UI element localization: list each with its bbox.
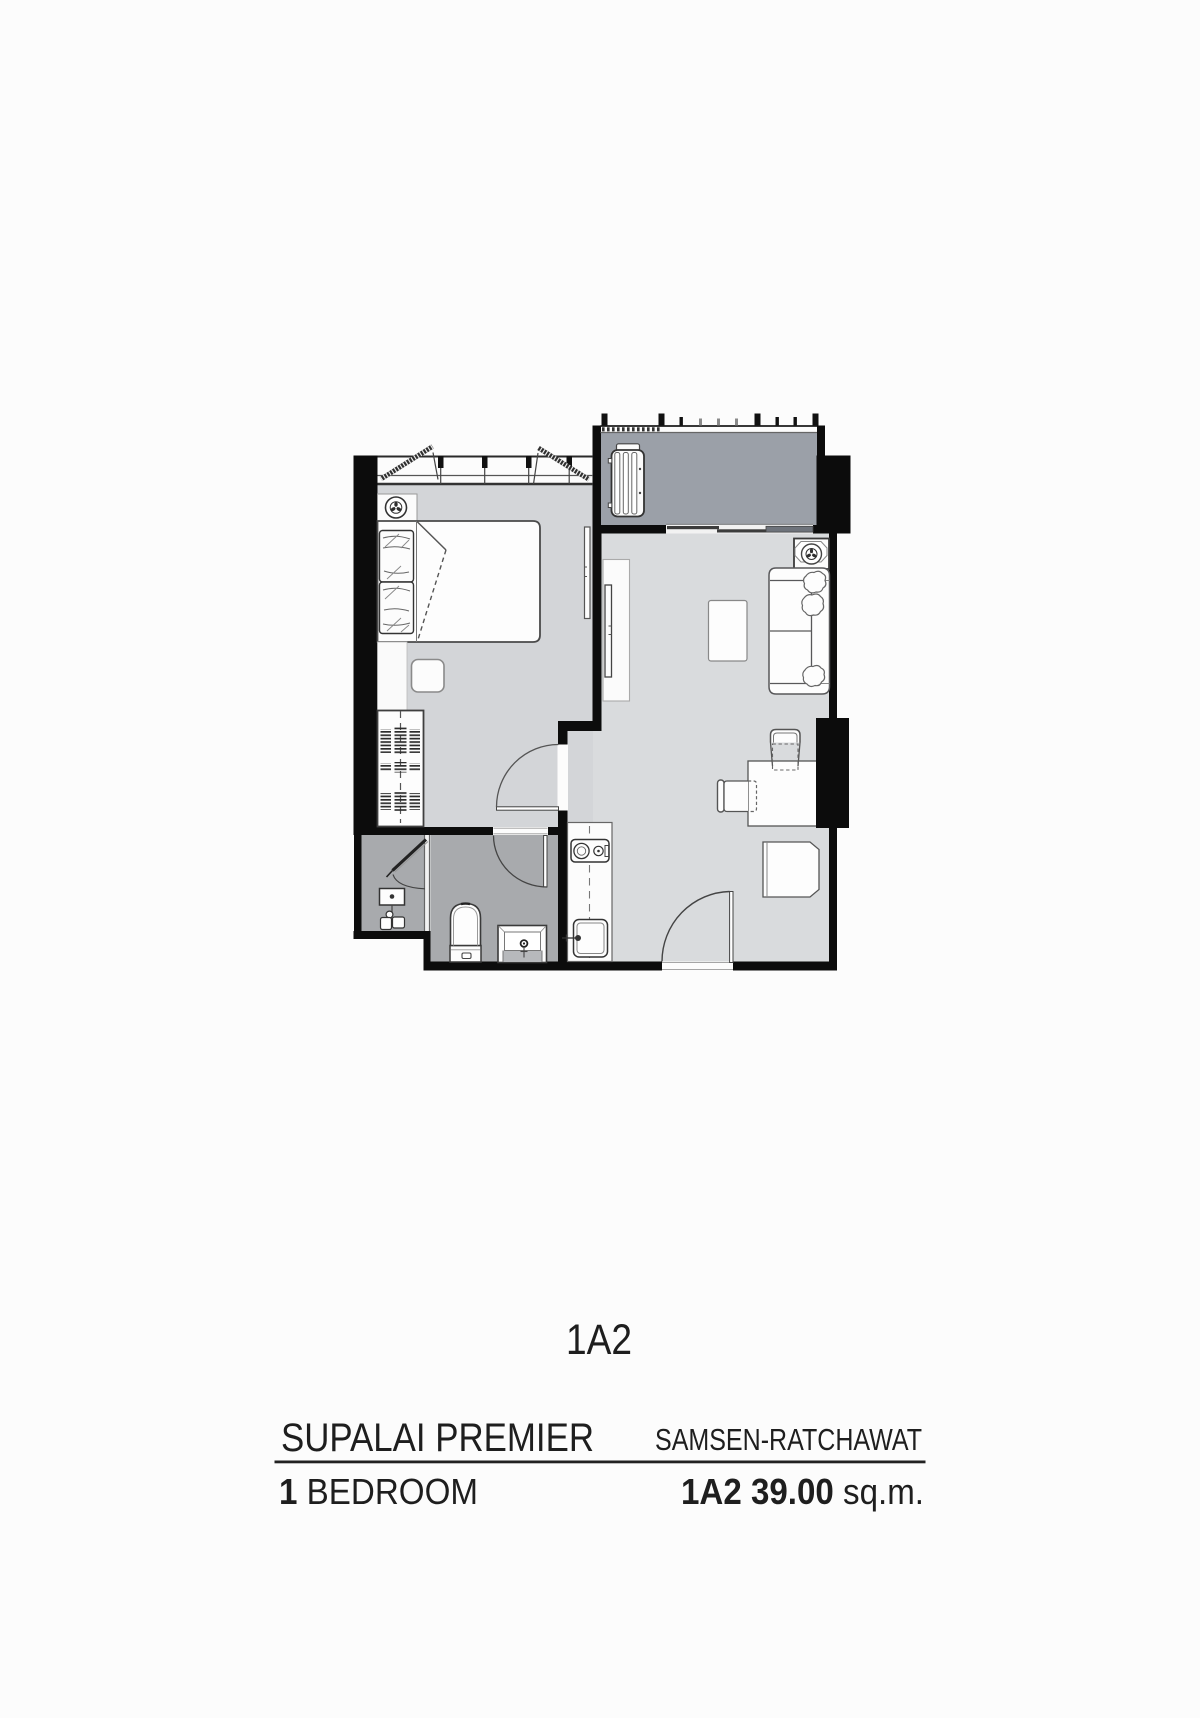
svg-text:1A2 39.00 sq.m.: 1A2 39.00 sq.m.: [681, 1471, 924, 1512]
svg-text:1A2: 1A2: [566, 1316, 632, 1364]
svg-text:SUPALAI PREMIER: SUPALAI PREMIER: [281, 1416, 594, 1460]
svg-text:SAMSEN-RATCHAWAT: SAMSEN-RATCHAWAT: [655, 1422, 922, 1457]
svg-text:1 BEDROOM: 1 BEDROOM: [279, 1471, 478, 1512]
